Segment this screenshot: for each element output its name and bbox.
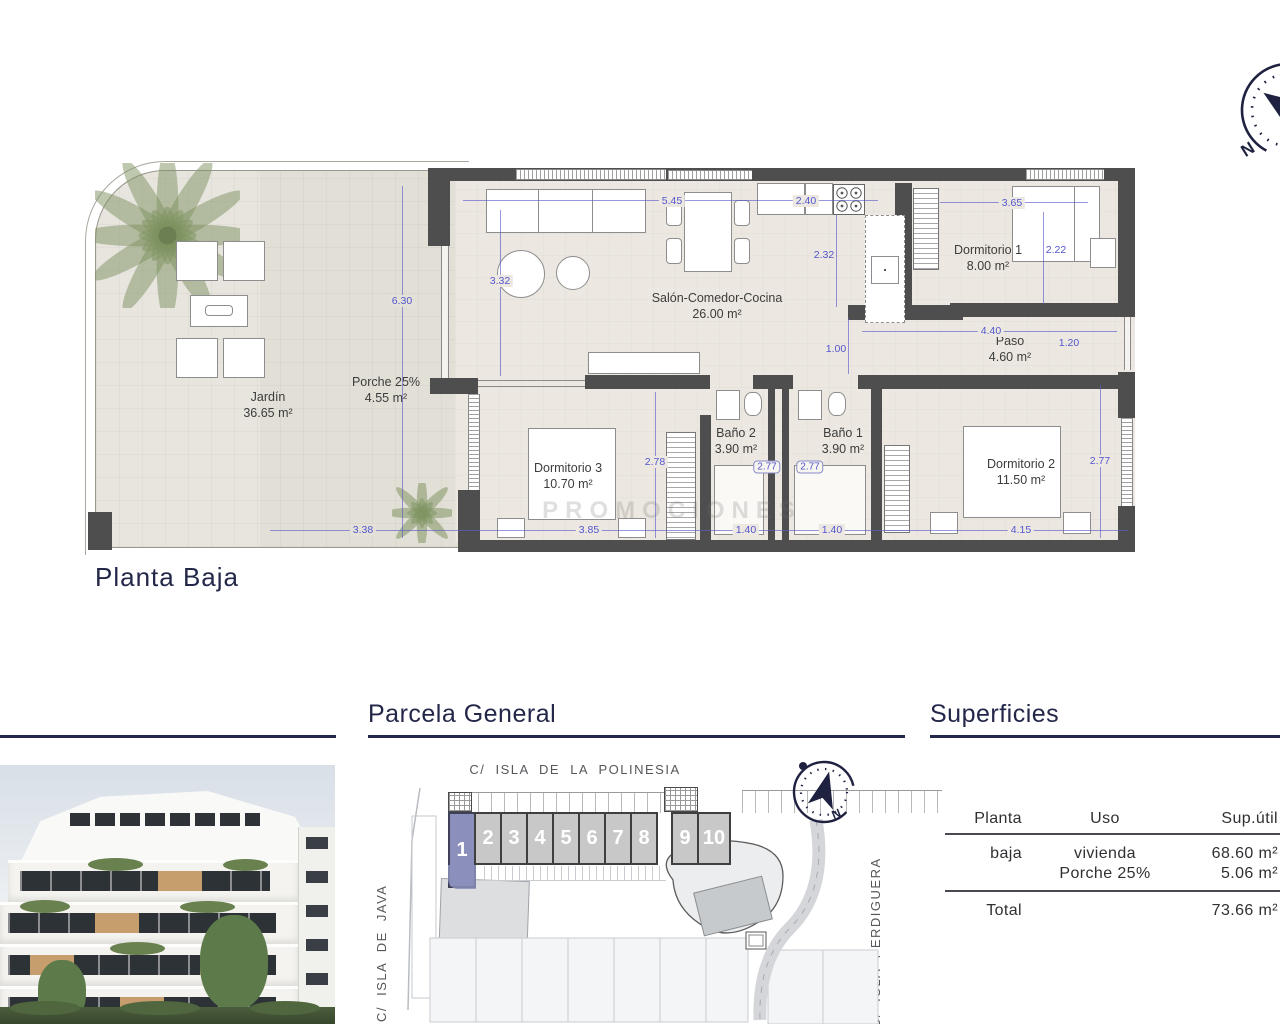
table-cell-sup: 68.60 m² [1158, 845, 1278, 863]
section-divider [368, 735, 905, 738]
section-divider [930, 735, 1280, 738]
room-label-paso: Paso4.60 m² [989, 333, 1031, 366]
dimension-label: 2.77 [796, 461, 823, 474]
table-header-sup: Sup.útil [1158, 810, 1278, 828]
unit-10: 10 [697, 812, 731, 865]
dimension-label: 2.78 [642, 456, 668, 468]
room-label-jardin: Jardín36.65 m² [243, 389, 292, 422]
dining-chair [734, 200, 750, 226]
nightstand [497, 518, 525, 538]
superficies-title: Superficies [930, 700, 1059, 729]
table-header-uso: Uso [1040, 810, 1170, 828]
dimension-label: 1.00 [826, 343, 846, 355]
dimension-label: 5.45 [659, 195, 685, 207]
dimension-label: 3.65 [999, 197, 1025, 209]
table-cell-uso: Porche 25% [1040, 865, 1170, 883]
section-divider [0, 735, 336, 738]
dimension-label: 6.30 [389, 295, 415, 307]
garden-table-top [205, 305, 233, 316]
washbasin [716, 390, 740, 420]
parking-strip [452, 792, 666, 813]
watermark: PROMOCIONES [542, 497, 802, 525]
plant-icon [392, 483, 452, 543]
toilet [828, 392, 846, 416]
dimension-label: 1.40 [819, 524, 845, 536]
unit-2: 2 [474, 812, 502, 865]
dimension-label: 2.77 [1087, 455, 1113, 467]
unit-5: 5 [552, 812, 580, 865]
dimension-label: 3.32 [487, 275, 513, 287]
table-cell-planta: baja [902, 845, 1022, 863]
coffee-table [497, 250, 545, 298]
table-total-value: 73.66 m² [1158, 902, 1278, 920]
table-total-label: Total [902, 902, 1022, 920]
unit-4: 4 [526, 812, 554, 865]
washbasin [798, 390, 822, 420]
unit-6: 6 [578, 812, 606, 865]
dimension-label: 2.22 [1046, 244, 1066, 256]
floor-plan: Jardín36.65 m² Porche 25%4.55 m² Salón-C… [0, 0, 1280, 620]
dining-table [684, 192, 732, 272]
wardrobe [884, 445, 910, 533]
dimension-label: 4.40 [978, 325, 1004, 337]
compass-icon: N [786, 754, 862, 832]
garden-chair [176, 241, 218, 281]
dining-chair [666, 238, 682, 264]
sideboard [588, 352, 700, 374]
room-label-porche: Porche 25%4.55 m² [352, 374, 420, 407]
dimension-label: 3.85 [576, 524, 602, 536]
entrance-structure [664, 787, 698, 812]
garden-chair [223, 241, 265, 281]
dimension-label: 1.20 [1059, 337, 1079, 349]
roofline [0, 791, 335, 863]
garden-chair [223, 338, 265, 378]
room-label-dormitorio-3: Dormitorio 310.70 m² [534, 460, 602, 493]
dimension-label: 1.40 [733, 524, 759, 536]
room-label-bano-1: Baño 13.90 m² [822, 425, 864, 458]
dining-chair [734, 238, 750, 264]
dimension-label: 3.38 [350, 524, 376, 536]
sofa [486, 189, 646, 233]
palm-tree-icon [95, 163, 240, 308]
unit-7: 7 [604, 812, 632, 865]
unit-3: 3 [500, 812, 528, 865]
brochure-page: N [0, 0, 1280, 1024]
sink-drain [884, 269, 886, 271]
tree [200, 915, 268, 1010]
unit-8: 8 [630, 812, 658, 865]
table-rule [945, 833, 1280, 835]
parcela-general-title: Parcela General [368, 700, 556, 729]
page-title: Planta Baja [95, 562, 239, 593]
room-label-dormitorio-2: Dormitorio 211.50 m² [987, 456, 1055, 489]
entrance-structure [448, 792, 472, 812]
room-label-bano-2: Baño 23.90 m² [715, 425, 757, 458]
dimension-label: 2.32 [814, 249, 834, 261]
table-header-planta: Planta [902, 810, 1022, 828]
toilet [744, 392, 762, 416]
dimension-label: 4.15 [1008, 524, 1034, 536]
wardrobe [913, 188, 939, 270]
balcony-row [478, 866, 666, 881]
room-label-salon: Salón-Comedor-Cocina26.00 m² [652, 290, 783, 323]
room-label-dormitorio-1: Dormitorio 18.00 m² [954, 242, 1022, 275]
building-render-photo [0, 765, 335, 1024]
table-rule [945, 890, 1280, 892]
street-label-polinesia: C/ ISLA DE LA POLINESIA [430, 762, 720, 777]
unit-9: 9 [671, 812, 699, 865]
table-cell-sup: 5.06 m² [1158, 865, 1278, 883]
coffee-table [556, 256, 590, 290]
unit-1-garden [448, 865, 476, 889]
table-cell-uso: vivienda [1040, 845, 1170, 863]
nightstand [1090, 238, 1116, 268]
compass-north-label: N [830, 806, 843, 822]
dimension-label: 2.40 [793, 195, 819, 207]
garden-chair [176, 338, 218, 378]
dimension-label: 2.77 [753, 461, 780, 474]
